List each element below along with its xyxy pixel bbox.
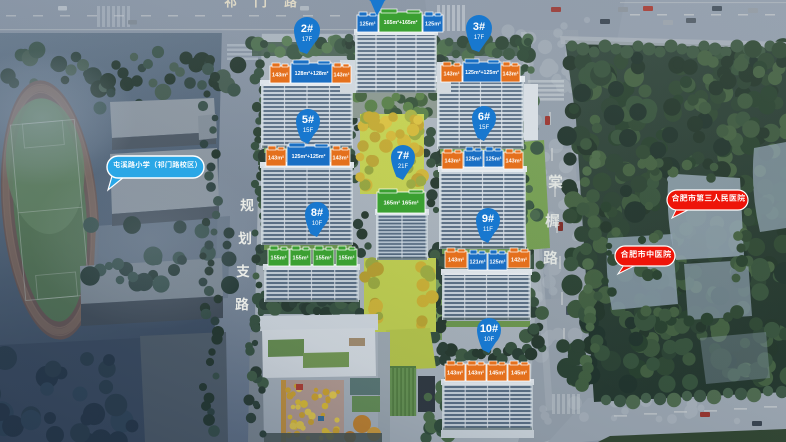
svg-text:155m²: 155m² <box>293 255 309 262</box>
svg-text:165m² 165m²: 165m² 165m² <box>383 200 418 207</box>
svg-text:142m²: 142m² <box>511 257 527 264</box>
svg-text:143m²: 143m² <box>444 71 460 78</box>
svg-text:125m²: 125m² <box>425 21 441 28</box>
svg-text:17F: 17F <box>302 37 313 43</box>
svg-text:6#: 6# <box>478 111 490 123</box>
svg-text:128m²+128m²: 128m²+128m² <box>295 71 329 77</box>
svg-text:143m²: 143m² <box>448 257 464 264</box>
svg-text:143m²: 143m² <box>333 155 349 162</box>
svg-text:143m²: 143m² <box>268 155 284 162</box>
svg-text:15F: 15F <box>303 128 314 134</box>
svg-text:125m²+125m²: 125m²+125m² <box>465 70 499 76</box>
svg-text:15F: 15F <box>479 125 490 131</box>
svg-text:3#: 3# <box>473 21 485 33</box>
svg-text:17F: 17F <box>474 35 485 41</box>
svg-text:155m²: 155m² <box>339 255 355 262</box>
svg-text:143m²: 143m² <box>334 72 350 79</box>
svg-text:145m²: 145m² <box>489 370 505 377</box>
svg-text:125m²: 125m² <box>360 21 376 28</box>
svg-text:11F: 11F <box>483 227 493 233</box>
svg-text:143m²: 143m² <box>506 158 522 165</box>
svg-text:9#: 9# <box>482 213 494 225</box>
svg-text:125m²+125m²: 125m²+125m² <box>292 154 326 160</box>
svg-text:8#: 8# <box>311 207 323 219</box>
svg-text:143m²: 143m² <box>447 370 463 377</box>
svg-text:145m²: 145m² <box>511 370 527 377</box>
svg-text:143m²: 143m² <box>503 71 519 78</box>
svg-text:10#: 10# <box>480 323 498 335</box>
svg-text:155m²: 155m² <box>316 255 332 262</box>
svg-text:2#: 2# <box>301 23 313 35</box>
svg-text:165m²+165m²: 165m²+165m² <box>384 20 418 26</box>
svg-text:10F: 10F <box>484 337 495 343</box>
svg-text:155m²: 155m² <box>271 255 287 262</box>
svg-text:125m²: 125m² <box>466 156 482 163</box>
svg-text:125m²: 125m² <box>486 156 502 163</box>
svg-text:143m²: 143m² <box>445 158 461 165</box>
svg-text:10F: 10F <box>312 221 323 227</box>
svg-text:125m²: 125m² <box>490 259 506 266</box>
svg-text:5#: 5# <box>302 114 314 126</box>
svg-text:7#: 7# <box>397 150 409 162</box>
svg-text:143m²: 143m² <box>272 72 288 79</box>
svg-text:21F: 21F <box>398 164 409 170</box>
svg-text:143m²: 143m² <box>468 370 484 377</box>
svg-text:121m²: 121m² <box>470 259 486 266</box>
